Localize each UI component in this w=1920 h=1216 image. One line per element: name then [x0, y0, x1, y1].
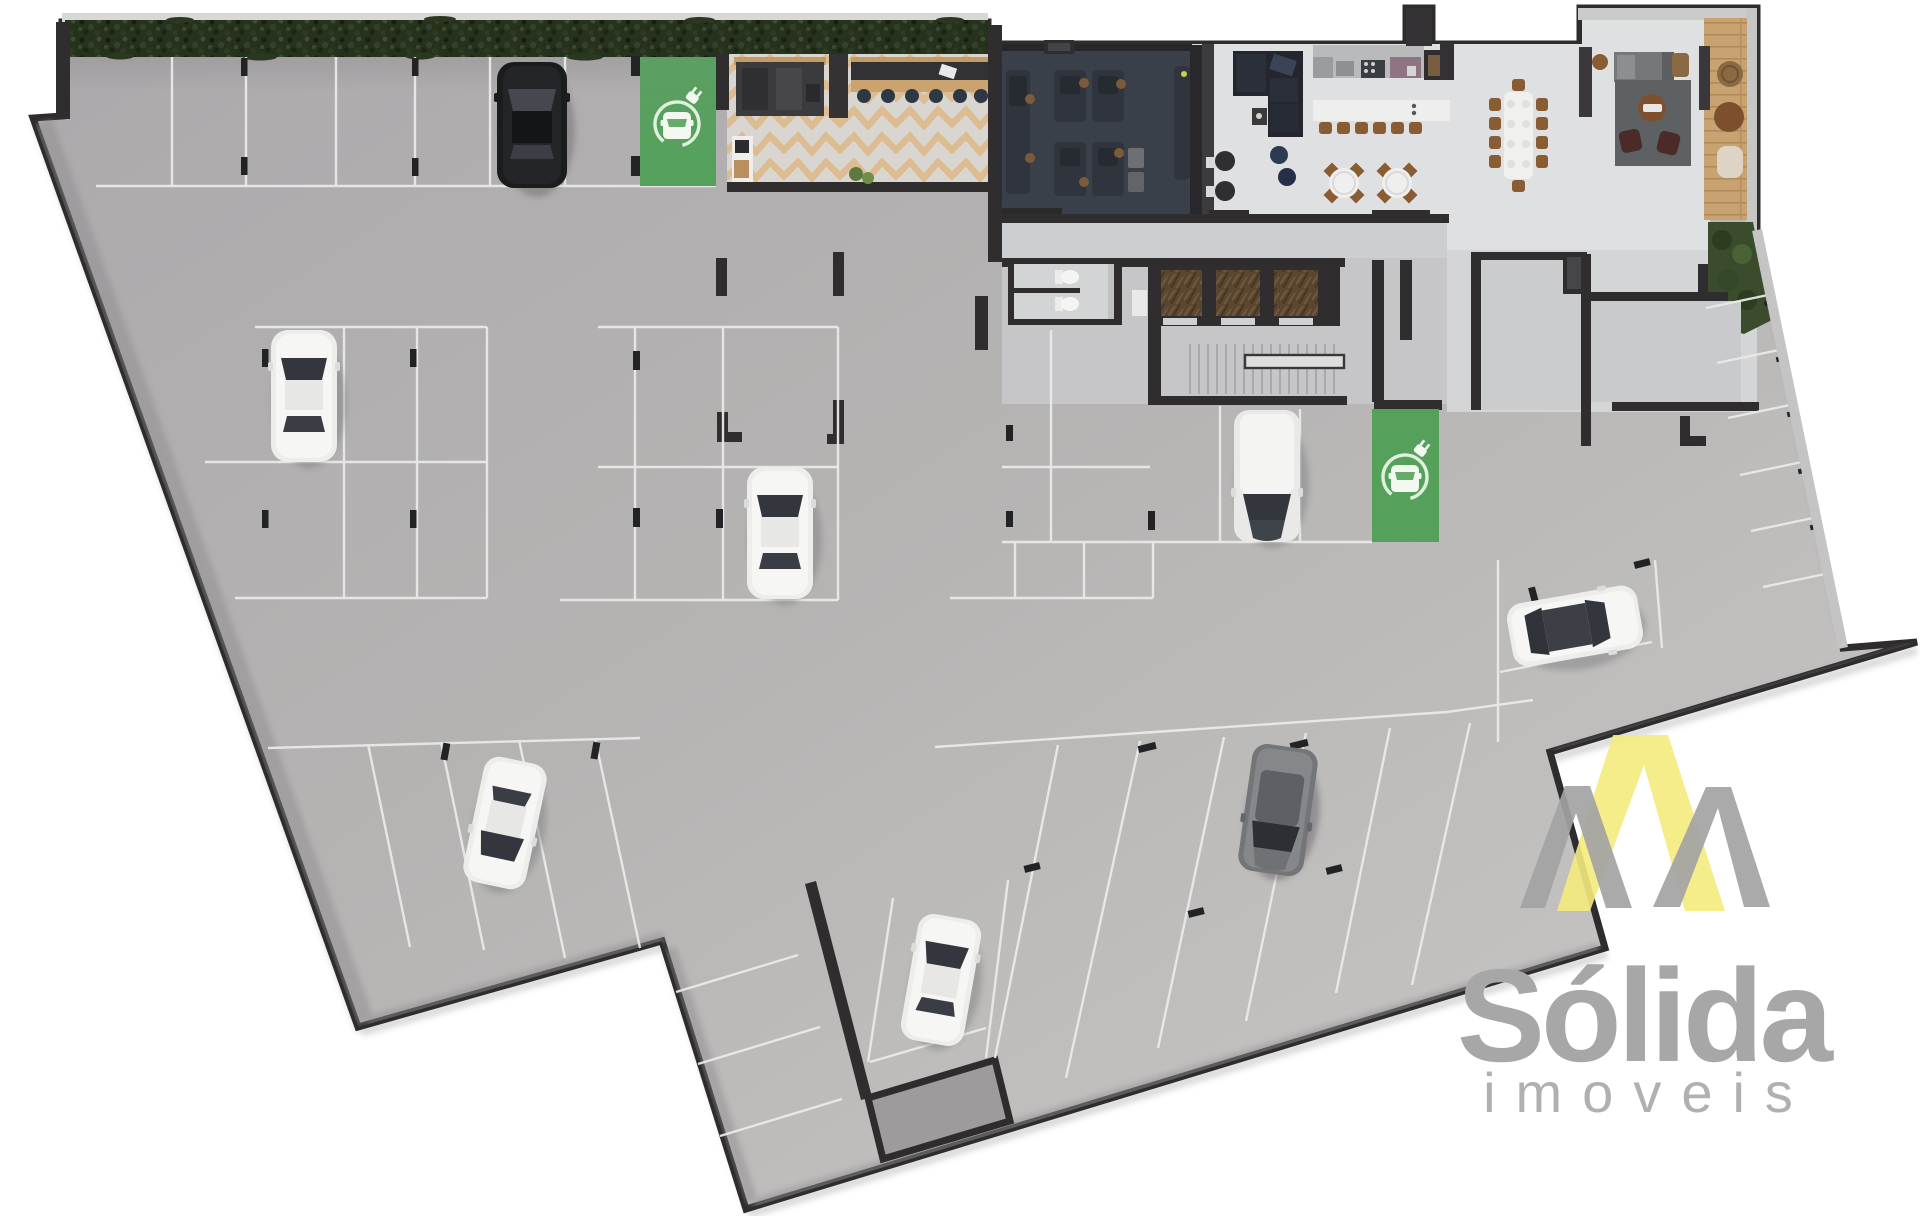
svg-text:imoveis: imoveis	[1483, 1061, 1813, 1124]
